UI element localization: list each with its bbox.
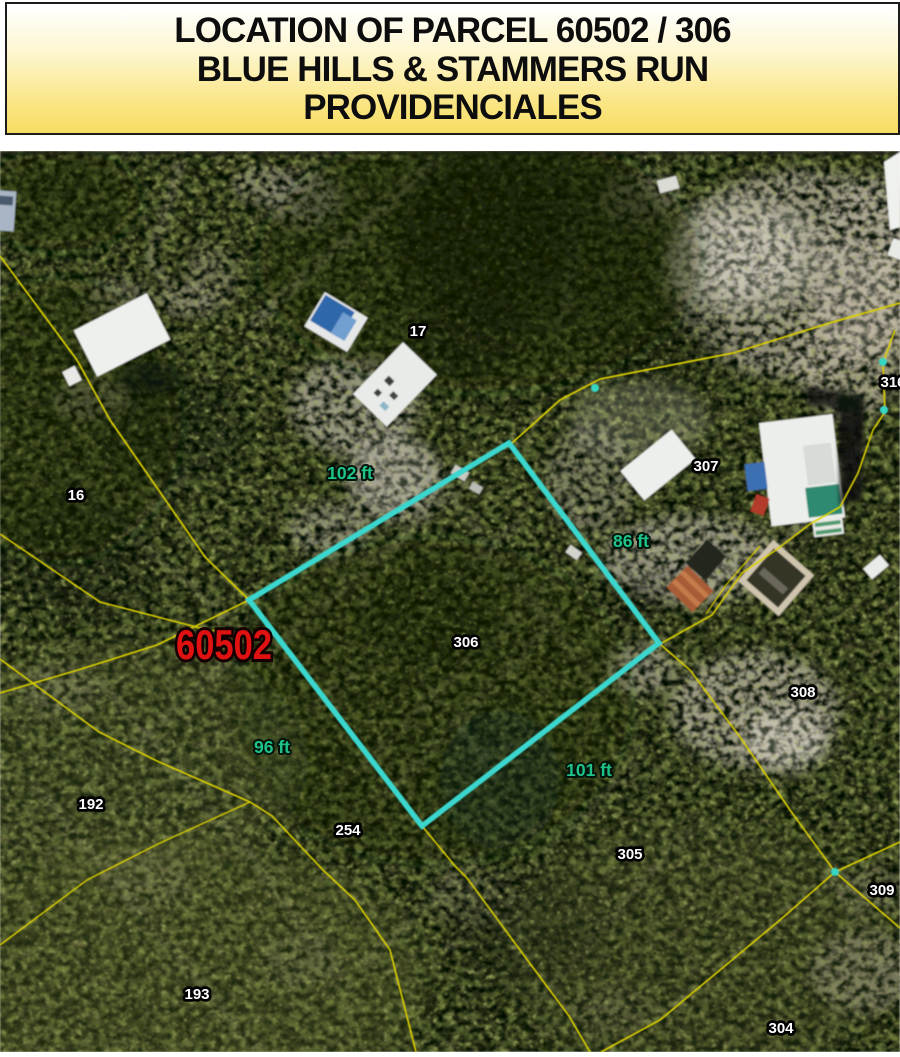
- svg-text:96 ft: 96 ft: [254, 737, 290, 757]
- svg-text:17: 17: [410, 323, 427, 340]
- svg-text:192: 192: [78, 796, 103, 813]
- svg-text:193: 193: [184, 986, 209, 1003]
- svg-text:254: 254: [335, 822, 361, 839]
- svg-text:86 ft: 86 ft: [613, 531, 649, 551]
- svg-text:101 ft: 101 ft: [566, 760, 612, 780]
- svg-text:309: 309: [869, 882, 894, 899]
- svg-text:308: 308: [790, 684, 815, 701]
- svg-text:306: 306: [453, 634, 478, 651]
- svg-text:16: 16: [68, 487, 85, 504]
- svg-text:307: 307: [693, 458, 718, 475]
- svg-text:102 ft: 102 ft: [327, 463, 373, 483]
- svg-text:60502: 60502: [176, 621, 272, 668]
- svg-text:316: 316: [880, 374, 900, 391]
- svg-text:304: 304: [768, 1020, 794, 1037]
- svg-text:305: 305: [617, 846, 642, 863]
